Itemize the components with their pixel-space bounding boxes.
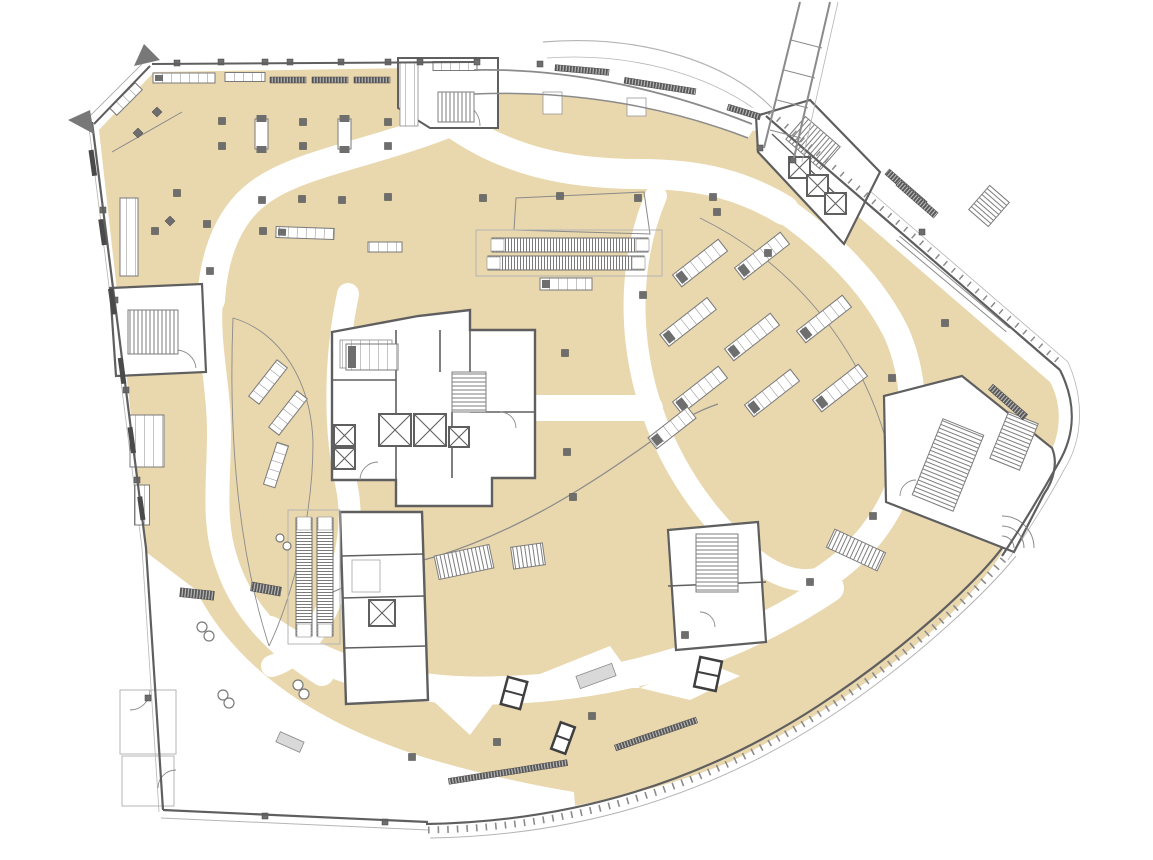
- fixture-shelving: [120, 198, 138, 276]
- facade-post: [919, 229, 925, 235]
- cafe-table: [276, 534, 284, 542]
- escalator-landing: [491, 239, 504, 251]
- stair-flight: [438, 92, 474, 122]
- vestibule-lockers: [400, 62, 418, 126]
- slot-cap-top: [340, 115, 350, 122]
- column: [152, 228, 159, 235]
- fixture-end-cap: [155, 75, 163, 81]
- escalator: [491, 238, 649, 252]
- merchandise-fixture: [346, 344, 398, 370]
- column: [480, 195, 487, 202]
- cafe-table: [283, 542, 291, 550]
- slot-fixture: [338, 115, 351, 153]
- elevator: [334, 448, 355, 469]
- column: [299, 196, 306, 203]
- central-core-room: [332, 310, 535, 506]
- slot-body: [255, 119, 268, 149]
- merchandise-fixture: [153, 73, 215, 83]
- facade-post: [790, 157, 796, 163]
- escalator-landing: [297, 624, 311, 637]
- column: [300, 143, 307, 150]
- column: [300, 119, 307, 126]
- fixture-shelving: [225, 73, 265, 82]
- door-frame: [694, 657, 722, 691]
- fixture-end-cap: [278, 229, 286, 236]
- escalator-treads: [492, 238, 648, 252]
- merchandise-fixture: [368, 242, 402, 252]
- facade-post: [474, 59, 480, 65]
- louver-band: [312, 77, 348, 83]
- stair-flight: [696, 534, 738, 592]
- column: [219, 118, 226, 125]
- column: [385, 194, 392, 201]
- facade-post: [757, 145, 763, 151]
- corner-arrow-north: [134, 44, 160, 66]
- column: [714, 209, 721, 216]
- merchandise-fixture: [540, 278, 592, 290]
- column: [562, 350, 569, 357]
- stair-flight: [452, 372, 486, 412]
- escalator-landing: [636, 239, 649, 251]
- column: [870, 513, 877, 520]
- stair-flight: [511, 543, 546, 569]
- escalator: [317, 517, 333, 637]
- facade-post: [537, 61, 543, 67]
- corner-arrow-west: [68, 110, 94, 134]
- central-core: [332, 310, 535, 506]
- escalator-landing: [297, 517, 311, 530]
- cafe-table: [197, 622, 207, 632]
- column: [942, 320, 949, 327]
- slot-cap-bottom: [257, 146, 267, 153]
- escalator-landing: [487, 257, 500, 269]
- escalator-landing: [318, 517, 332, 530]
- column: [174, 190, 181, 197]
- escalator-treads: [317, 518, 333, 636]
- column: [385, 143, 392, 150]
- escalator-treads: [296, 518, 312, 636]
- elevator: [449, 427, 469, 447]
- cafe-table: [224, 698, 234, 708]
- slot-fixture: [255, 115, 268, 153]
- column: [557, 193, 564, 200]
- stair-flight: [128, 310, 178, 354]
- fixture-shelving: [368, 242, 402, 252]
- escalator: [487, 256, 645, 270]
- fixture-end-cap: [542, 280, 550, 288]
- escalator-landing: [318, 624, 332, 637]
- facade-post: [145, 695, 151, 701]
- column: [219, 143, 226, 150]
- fixture-end-cap: [348, 346, 356, 368]
- column: [570, 494, 577, 501]
- elevator: [414, 414, 446, 446]
- merchandise-fixture: [276, 226, 334, 239]
- cafe-table: [293, 680, 303, 690]
- merchandise-fixture: [225, 73, 265, 82]
- slot-cap-top: [257, 115, 267, 122]
- column: [385, 119, 392, 126]
- elevator: [825, 193, 846, 214]
- cafe-table: [204, 631, 214, 641]
- elevator: [379, 414, 411, 446]
- cafe-table: [299, 689, 309, 699]
- column: [564, 449, 571, 456]
- louver-band: [354, 77, 390, 83]
- slot-cap-bottom: [340, 146, 350, 153]
- elevator: [369, 600, 395, 626]
- column: [635, 195, 642, 202]
- escalator: [296, 517, 312, 637]
- louver-band: [270, 77, 306, 83]
- column: [494, 739, 501, 746]
- stair-flight: [969, 185, 1010, 226]
- floor-plan-page: [0, 0, 1153, 860]
- column: [259, 197, 266, 204]
- column: [207, 268, 214, 275]
- column: [682, 632, 689, 639]
- column: [710, 194, 717, 201]
- escalator-treads: [488, 256, 644, 270]
- column: [339, 197, 346, 204]
- escalator-landing: [632, 257, 645, 269]
- column: [204, 221, 211, 228]
- louver-band: [896, 180, 938, 218]
- elevator: [334, 425, 355, 446]
- column: [765, 250, 772, 257]
- column: [589, 713, 596, 720]
- column: [640, 292, 647, 299]
- column: [260, 228, 267, 235]
- column: [889, 375, 896, 382]
- column: [807, 579, 814, 586]
- column: [409, 754, 416, 761]
- merchandise-fixture: [120, 198, 138, 276]
- floor-plan-drawing: [0, 0, 1153, 860]
- slot-body: [338, 119, 351, 149]
